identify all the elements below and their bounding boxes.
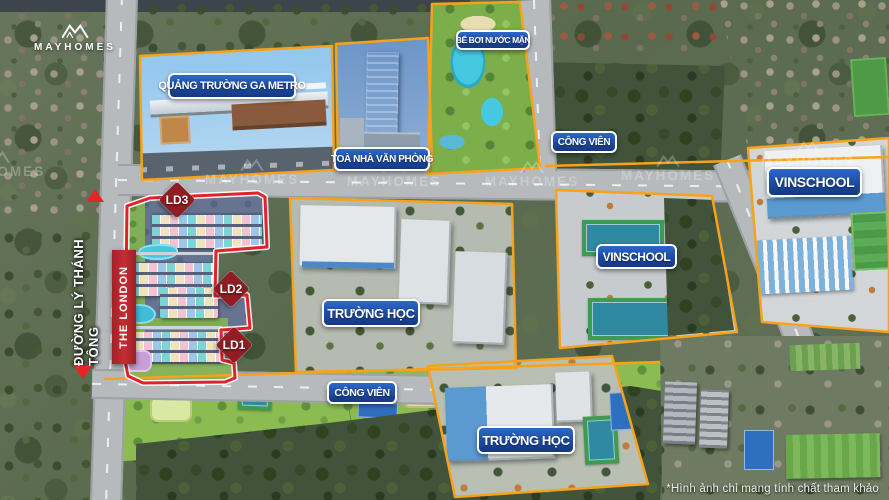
school-building [452,251,507,345]
internal-road [128,252,216,255]
watermark: MAYHOMES [196,158,308,187]
residential-cluster-ld2b [160,288,218,318]
sports-court [588,298,676,340]
mayhomes-logo: MAYHOMES [34,22,116,53]
green-roof-building [790,343,861,371]
arrow-down-icon [74,366,92,379]
mayhomes-watermark-icon [239,158,265,172]
label-school-central: TRƯỜNG HỌC [322,299,420,327]
school-building [399,219,452,305]
label-park-bottom: CÔNG VIÊN [327,381,397,404]
apartment-block [699,390,729,449]
plot-marker-ld1: LD1 [216,327,252,363]
basketball-court [744,430,774,470]
arrow-up-icon [86,189,104,202]
mayhomes-watermark-icon [519,160,545,174]
project-name-ribbon: THE LONDON [112,250,136,364]
mayhomes-watermark-icon [0,150,11,164]
plot-marker-ld2: LD2 [213,271,249,307]
blue-roof-rows [757,236,854,295]
label-vinschool-central: VINSCHOOL [596,244,677,269]
plot-marker-ld3: LD3 [159,182,195,218]
label-vinschool-east: VINSCHOOL [767,167,862,197]
school-building [299,205,396,269]
label-school-south: TRƯỜNG HỌC [477,426,575,454]
label-metro-square: QUẢNG TRƯỜNG GA METRO [168,73,296,99]
metro-stairs [159,115,190,145]
apartment-block [663,381,697,444]
disclaimer-note: *Hình ảnh chỉ mang tính chất tham khảo [666,483,879,495]
label-park-top: CÔNG VIÊN [551,131,617,153]
label-office-tower: TOÀ NHÀ VĂN PHÒNG [334,147,430,171]
metro-facade [231,100,326,131]
masterplan-map: MAYHOMES MAYHOMES MAYHOMES MAYHOMES MAYH… [0,0,889,500]
label-salt-water-pool: BỂ BƠI NƯỚC MẶN [456,30,530,50]
mayhomes-watermark-icon [655,154,681,168]
street-name-label: ĐƯỜNG LÝ THÁNH TÔNG [70,202,102,366]
residential-cluster-ld3 [152,213,262,248]
watermark: MAYHOMES [476,160,588,189]
watermark: MAYHOMES [752,140,864,169]
green-roof-building [786,433,881,479]
field-northeast [850,57,889,117]
school-building [555,371,593,422]
mayhomes-logo-icon [60,22,90,40]
internal-road [128,326,222,329]
mayhomes-watermark-icon [795,140,821,154]
watermark: MAYHOMES [612,154,724,183]
blue-roof-edge [302,261,394,269]
watermark: MAYHOMES [0,150,54,179]
sports-field [851,211,889,271]
